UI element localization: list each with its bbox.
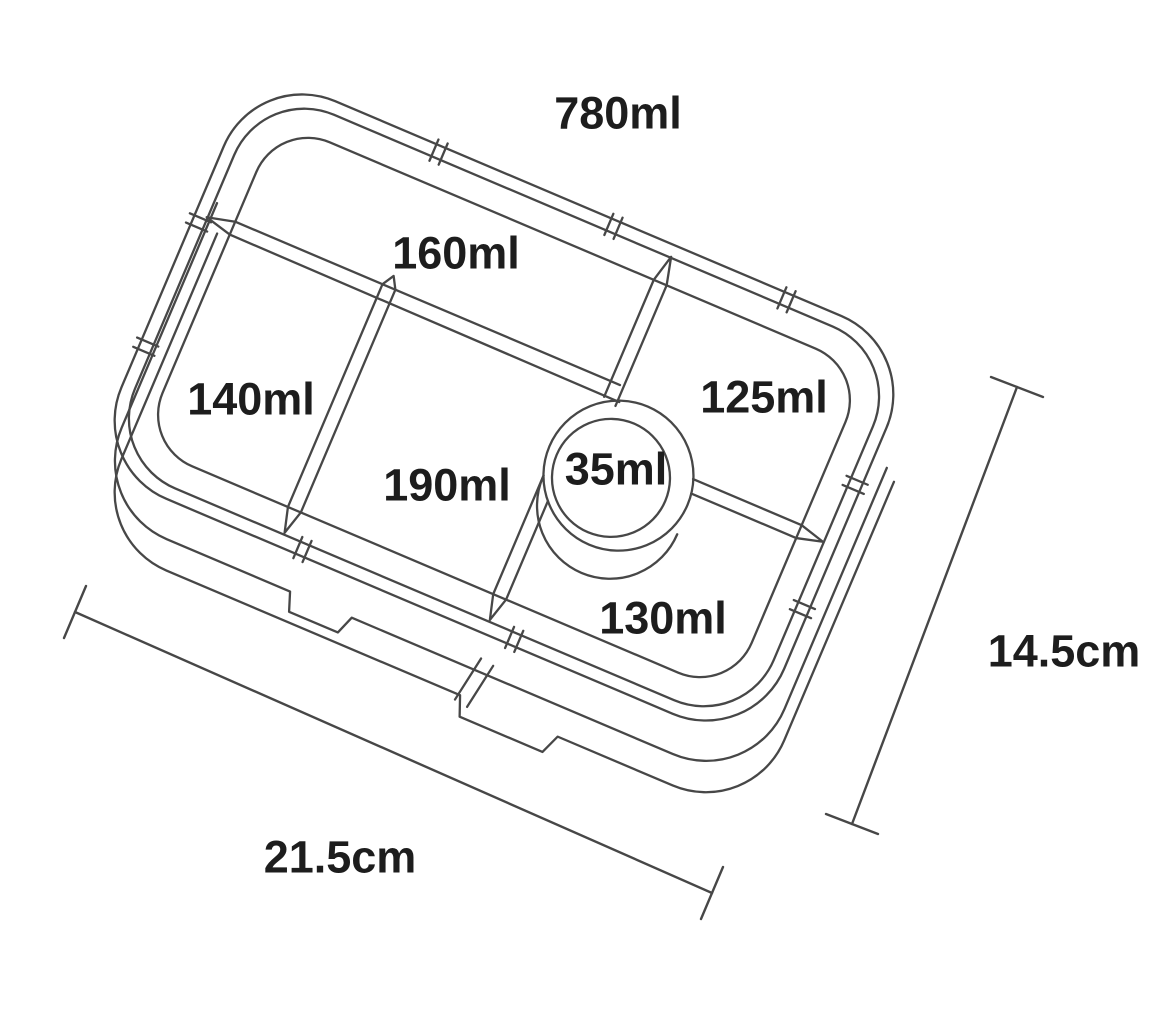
round-compartment-side [514, 477, 677, 601]
compartment-label-left: 140ml [187, 374, 315, 425]
compartment-label-center: 190ml [383, 460, 511, 511]
dimension-depth-label: 14.5cm [988, 626, 1141, 677]
dimension-length-label: 21.5cm [264, 832, 417, 883]
tray-group [50, 61, 947, 837]
compartment-label-right: 125ml [700, 372, 828, 423]
total-volume-label: 780ml [554, 88, 682, 139]
compartment-label-top: 160ml [392, 228, 520, 279]
diagram-canvas: 780ml 160ml 140ml 125ml 190ml 35ml 130ml… [0, 0, 1170, 1026]
divider-right-horizontal [688, 479, 826, 548]
dimension-depth [826, 377, 1043, 834]
tray-base-outline-outer [80, 200, 894, 837]
compartment-label-round: 35ml [565, 444, 668, 495]
compartment-label-bottom: 130ml [599, 593, 727, 644]
bento-tray-technical-drawing: 780ml 160ml 140ml 125ml 190ml 35ml 130ml… [0, 0, 1170, 1026]
